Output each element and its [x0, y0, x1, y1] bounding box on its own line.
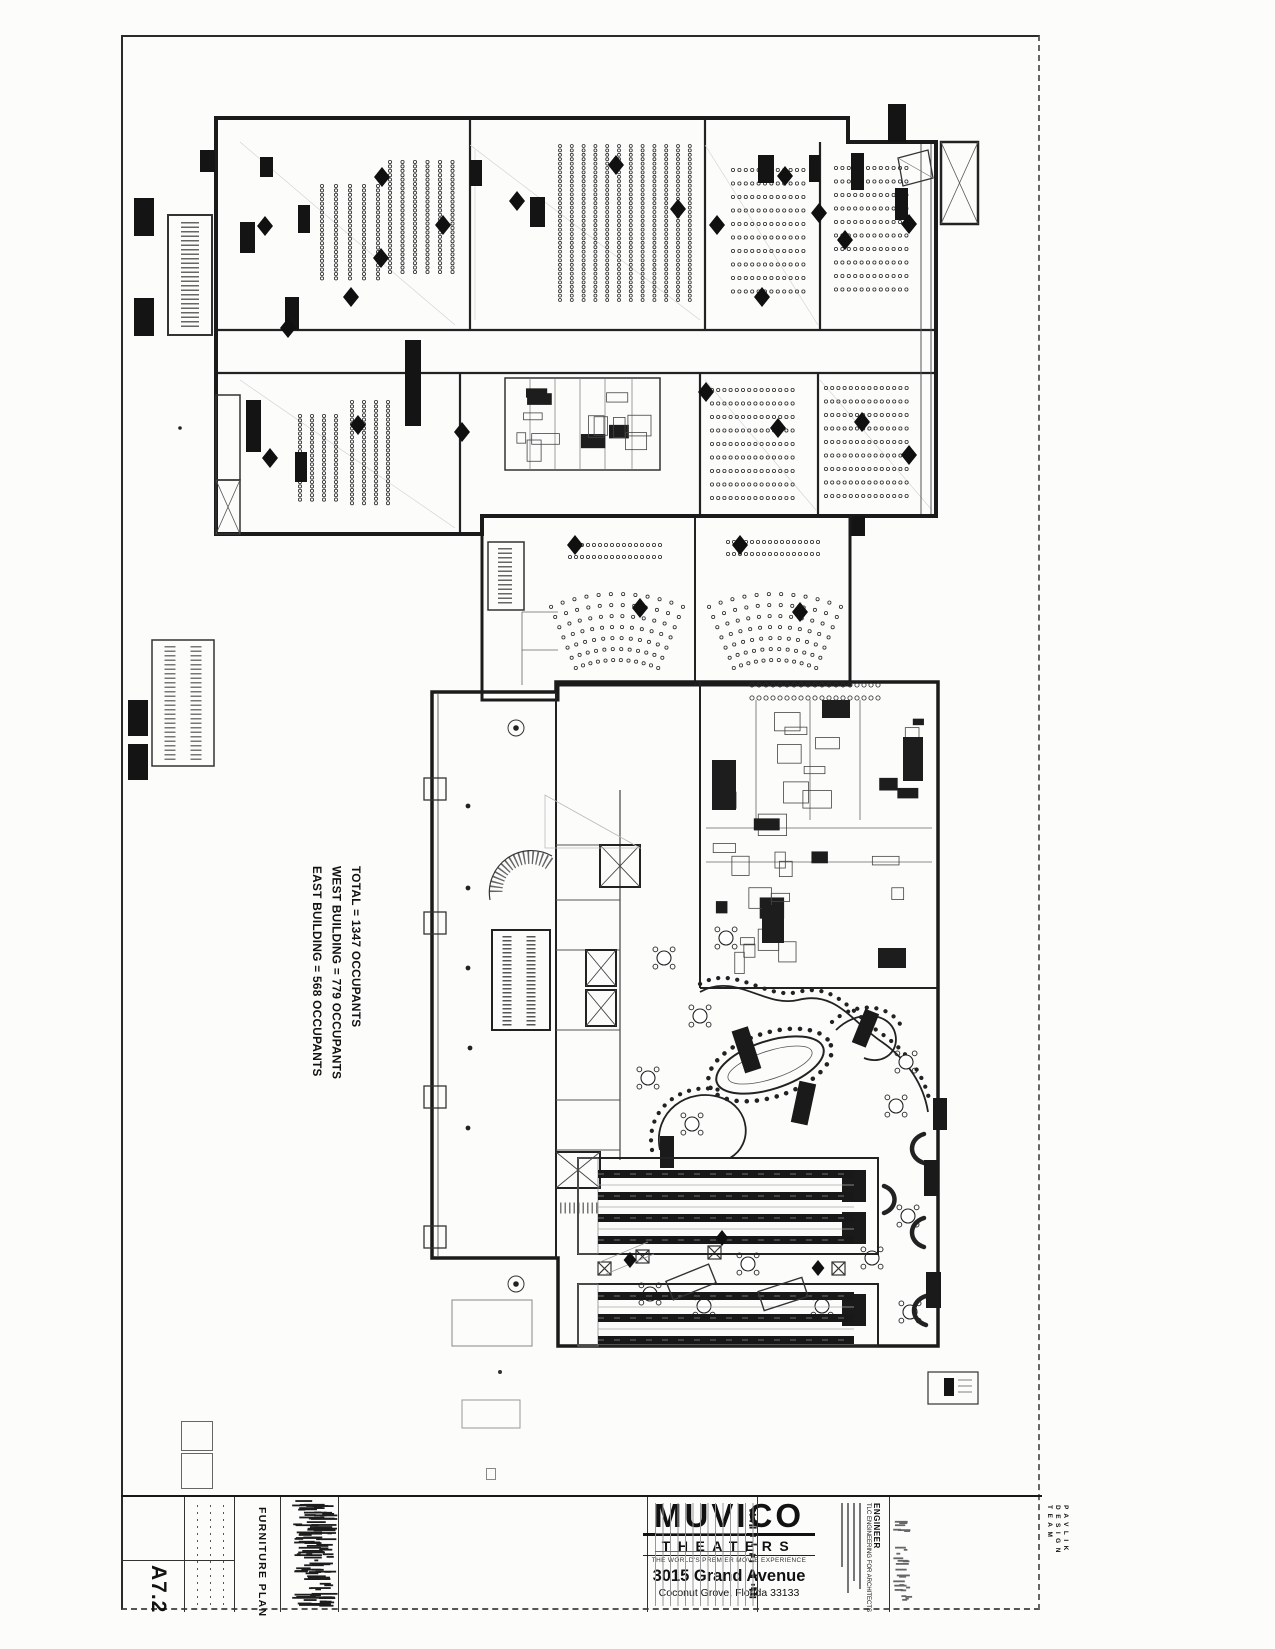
seat-dot [677, 158, 680, 161]
seat-dot [893, 386, 896, 389]
seat-dot [451, 262, 454, 265]
seat-dot [785, 483, 788, 486]
seat-dot [594, 197, 597, 200]
seat-dot [594, 167, 597, 170]
seat-dot [606, 153, 609, 156]
seat-dot [710, 483, 713, 486]
seat-dot [451, 266, 454, 269]
seat-dot [653, 149, 656, 152]
equipment [879, 778, 897, 791]
seat-dot [606, 184, 609, 187]
seat-dot [831, 481, 834, 484]
seat-dot [594, 193, 597, 196]
seat-dot [741, 415, 744, 418]
seat-dot [629, 272, 632, 275]
seat-dot [376, 211, 379, 214]
seat-dot [594, 184, 597, 187]
seat-dot [677, 263, 680, 266]
seat-dot [783, 263, 786, 266]
seat-dot [886, 440, 889, 443]
seat-dot [783, 222, 786, 225]
seat-dot [779, 442, 782, 445]
seat-dot [656, 643, 659, 646]
seat-dot [618, 219, 621, 222]
seat-dot [757, 236, 760, 239]
seat-dot [629, 211, 632, 214]
seat-dot [899, 413, 902, 416]
seat-dot [776, 209, 779, 212]
seat-dot [362, 471, 365, 474]
seat-dot [562, 636, 565, 639]
seat-dot [570, 171, 573, 174]
seat-dot [892, 166, 895, 169]
seat-dot [320, 233, 323, 236]
seat-dot [873, 193, 876, 196]
seat-dot [629, 250, 632, 253]
equipment [524, 413, 543, 420]
seat-dot [628, 648, 631, 651]
seat-dot [386, 436, 389, 439]
seat-dot [629, 180, 632, 183]
seat-dot [748, 456, 751, 459]
seat-dot [570, 290, 573, 293]
seat-dot [618, 259, 621, 262]
seat-dot [606, 202, 609, 205]
seat-dot [570, 255, 573, 258]
seat-dot [362, 224, 365, 227]
seat-dot [641, 197, 644, 200]
seat-dot [426, 222, 429, 225]
seat-dot [766, 469, 769, 472]
seat-dot [374, 475, 377, 478]
seat-dot [776, 222, 779, 225]
seat-dot [616, 543, 619, 546]
seat-dot [766, 402, 769, 405]
seat-dot [362, 480, 365, 483]
seat-dot [785, 415, 788, 418]
seat-dot [641, 246, 644, 249]
seat-dot [582, 211, 585, 214]
seat-dot [559, 175, 562, 178]
seat-dot [598, 555, 601, 558]
seat-dot [629, 241, 632, 244]
seat-dot [334, 224, 337, 227]
seat-dot [792, 593, 795, 596]
seat-dot [606, 299, 609, 302]
seat-dot [860, 261, 863, 264]
seat-dot [860, 247, 863, 250]
seat-dot [348, 224, 351, 227]
seat-dot [729, 402, 732, 405]
seat-dot [610, 604, 613, 607]
equipment [811, 851, 827, 863]
seat-dot [559, 268, 562, 271]
seat-dot [837, 467, 840, 470]
chair [861, 1264, 866, 1269]
occupancy-west: WEST BUILDING = 779 OCCUPANTS [330, 866, 344, 1079]
seat-dot [334, 215, 337, 218]
seat-dot [334, 206, 337, 209]
seat-dot [570, 180, 573, 183]
seat-dot [866, 207, 869, 210]
seat-dot [751, 236, 754, 239]
seat-dot [688, 145, 691, 148]
seat-dot [413, 165, 416, 168]
seat-dot [834, 193, 837, 196]
seat-dot [905, 413, 908, 416]
seat-dot [653, 206, 656, 209]
seat-dot [770, 263, 773, 266]
seat-dot [582, 215, 585, 218]
seat-dot [762, 540, 765, 543]
seat-dot [374, 422, 377, 425]
seat-dot [738, 249, 741, 252]
seat-dot [629, 246, 632, 249]
seat-dot [795, 182, 798, 185]
seat-dot [837, 481, 840, 484]
seat-dot [362, 488, 365, 491]
seat-dot [710, 429, 713, 432]
seat-dot [334, 189, 337, 192]
seat-dot [736, 653, 739, 656]
seat-dot [334, 463, 337, 466]
seat-dot [785, 442, 788, 445]
seat-dot [581, 630, 584, 633]
seat-dot [322, 423, 325, 426]
seat-dot [641, 215, 644, 218]
seat-dot [760, 483, 763, 486]
seat-dot [348, 206, 351, 209]
seat-dot [642, 617, 645, 620]
seat-dot [413, 196, 416, 199]
seat-dot [559, 281, 562, 284]
seat-dot [388, 178, 391, 181]
seat-dot [779, 496, 782, 499]
seat-dot [582, 206, 585, 209]
seat-dot [780, 593, 783, 596]
seat-dot [653, 162, 656, 165]
seat-dot [905, 261, 908, 264]
seat-dot [772, 415, 775, 418]
seat-dot [322, 441, 325, 444]
seat-dot [582, 224, 585, 227]
seat-dot [570, 281, 573, 284]
seat-dot [661, 656, 664, 659]
seat-dot [893, 413, 896, 416]
seat-dot [665, 167, 668, 170]
seat-dot [388, 270, 391, 273]
seat-dot [665, 272, 668, 275]
seat-dot [559, 241, 562, 244]
issue-notes-cell [281, 1497, 339, 1612]
seat-dot [629, 637, 632, 640]
seat-dot [811, 619, 814, 622]
seat-dot [728, 656, 731, 659]
seat-dot [582, 281, 585, 284]
seat-dot [570, 153, 573, 156]
seat-dot [348, 211, 351, 214]
seat-dot [751, 182, 754, 185]
seat-dot [388, 218, 391, 221]
seat-dot [726, 622, 729, 625]
seat-dot [880, 386, 883, 389]
seat-dot [616, 555, 619, 558]
seat-dot [641, 149, 644, 152]
seat-dot [898, 220, 901, 223]
seat-dot [834, 696, 838, 700]
seat-dot [322, 445, 325, 448]
seat-dot [710, 496, 713, 499]
sheet-title: FURNITURE PLAN [256, 1507, 268, 1617]
seat-dot [362, 268, 365, 271]
seat-dot [570, 241, 573, 244]
seat-dot [386, 409, 389, 412]
middle-theaters [482, 516, 850, 700]
seat-dot [559, 149, 562, 152]
seat-dot [789, 195, 792, 198]
seat-dot [738, 182, 741, 185]
seat-dot [350, 488, 353, 491]
seat-dot [594, 290, 597, 293]
seat-dot [401, 253, 404, 256]
seat-dot [751, 263, 754, 266]
seat-dot [795, 195, 798, 198]
seat-dot [776, 236, 779, 239]
seat-dot [413, 253, 416, 256]
seat-dot [362, 202, 365, 205]
seat-dot [811, 653, 814, 656]
seat-dot [738, 222, 741, 225]
seat-dot [854, 234, 857, 237]
seat-dot [756, 604, 759, 607]
seat-dot [741, 640, 744, 643]
seat-dot [320, 264, 323, 267]
seat-dot [665, 175, 668, 178]
seat-dot [841, 288, 844, 291]
seat-dot [362, 198, 365, 201]
seat-dot [611, 647, 614, 650]
seat-dot [388, 262, 391, 265]
seat-dot [350, 497, 353, 500]
seat-dot [451, 240, 454, 243]
seat-dot [582, 175, 585, 178]
seat-dot [733, 643, 736, 646]
seat-dot [310, 494, 313, 497]
seat-dot [413, 209, 416, 212]
seat-dot [688, 206, 691, 209]
seat-dot [807, 664, 810, 667]
seat-dot [854, 220, 857, 223]
seat-dot [582, 263, 585, 266]
seat-dot [413, 204, 416, 207]
seat-dot [860, 288, 863, 291]
seat-dot [559, 153, 562, 156]
seat-dot [819, 656, 822, 659]
seat-dot [386, 475, 389, 478]
seat-dot [334, 441, 337, 444]
seat-dot [376, 277, 379, 280]
seat-dot [789, 249, 792, 252]
seat-dot [604, 543, 607, 546]
seat-dot [322, 450, 325, 453]
seat-dot [622, 543, 625, 546]
seat-dot [376, 189, 379, 192]
seat-dot [629, 255, 632, 258]
seat-dot [413, 257, 416, 260]
seat-dot [665, 241, 668, 244]
seat-dot [348, 237, 351, 240]
equipment [732, 856, 749, 875]
seat-dot [665, 189, 668, 192]
seat-dot [618, 272, 621, 275]
seat-dot [886, 400, 889, 403]
seat-dot [594, 281, 597, 284]
seat-dot [376, 206, 379, 209]
chair [637, 1067, 642, 1072]
seat-dot [334, 489, 337, 492]
seat-dot [618, 277, 621, 280]
seat-dot [802, 236, 805, 239]
seat-dot [629, 219, 632, 222]
seat-dot [362, 444, 365, 447]
seat-dot [760, 429, 763, 432]
seat-dot [849, 440, 852, 443]
seat-dot [334, 454, 337, 457]
seat-dot [641, 294, 644, 297]
seat-dot [374, 436, 377, 439]
seat-dot [310, 436, 313, 439]
seat-dot [780, 540, 783, 543]
seat-dot [653, 184, 656, 187]
seat-dot [886, 261, 889, 264]
seat-dot [653, 255, 656, 258]
seat-dot [783, 276, 786, 279]
seat-dot [582, 294, 585, 297]
seat-dot [899, 386, 902, 389]
seat-dot [789, 222, 792, 225]
seat-dot [559, 202, 562, 205]
seat-dot [594, 215, 597, 218]
chair [861, 1247, 866, 1252]
seat-dot [322, 428, 325, 431]
seat-dot [334, 250, 337, 253]
seat-dot [905, 494, 908, 497]
keynote-diamond [670, 199, 686, 219]
seat-dot [834, 180, 837, 183]
east-building [424, 682, 978, 1428]
seat-dot [802, 263, 805, 266]
chair [754, 1270, 759, 1275]
seat-dot [592, 543, 595, 546]
seat-dot [575, 608, 578, 611]
seat-dot [898, 180, 901, 183]
seat-dot [348, 189, 351, 192]
seat-dot [320, 215, 323, 218]
seat-dot [618, 263, 621, 266]
seat-dot [899, 440, 902, 443]
chair [897, 1222, 902, 1227]
seat-dot [610, 614, 613, 617]
seat-dot [350, 471, 353, 474]
seat-dot [641, 167, 644, 170]
table [693, 1009, 707, 1023]
seat-dot [618, 180, 621, 183]
seat-dot [310, 472, 313, 475]
seat-dot [606, 294, 609, 297]
seat-dot [905, 166, 908, 169]
seat-dot [606, 268, 609, 271]
seat-dot [868, 440, 871, 443]
kitchen-concession [700, 682, 938, 988]
seat-dot [898, 288, 901, 291]
seat-dot [641, 290, 644, 293]
seat-dot [606, 259, 609, 262]
seat-dot [849, 400, 852, 403]
seat-dot [426, 196, 429, 199]
seat-dot [886, 427, 889, 430]
chair [732, 944, 737, 949]
seat-dot [334, 242, 337, 245]
seat-dot [653, 153, 656, 156]
seat-dot [426, 204, 429, 207]
seat-dot [843, 413, 846, 416]
seat-dot [795, 276, 798, 279]
seat-dot [582, 193, 585, 196]
seat-dot [362, 277, 365, 280]
auditorium-seats [710, 388, 794, 499]
seat-dot [760, 456, 763, 459]
seat-dot [610, 625, 613, 628]
seat-dot [879, 193, 882, 196]
seat-dot [374, 502, 377, 505]
seat-dot [413, 187, 416, 190]
seat-dot [873, 288, 876, 291]
seat-dot [653, 619, 656, 622]
seat-dot [628, 543, 631, 546]
seat-dot [348, 277, 351, 280]
seat-dot [362, 242, 365, 245]
seat-dot [862, 400, 865, 403]
seat-dot [899, 494, 902, 497]
seat-dot [677, 250, 680, 253]
seat-dot [794, 649, 797, 652]
seat-dot [350, 502, 353, 505]
seat-dot [802, 195, 805, 198]
seat-dot [724, 646, 727, 649]
seat-dot [594, 233, 597, 236]
seat-dot [677, 184, 680, 187]
chair [706, 1005, 711, 1010]
keynote-diamond [567, 535, 583, 555]
seat-dot [451, 191, 454, 194]
seat-dot [893, 481, 896, 484]
seat-dot [641, 299, 644, 302]
seat-dot [860, 274, 863, 277]
seat-dot [413, 222, 416, 225]
seat-dot [772, 442, 775, 445]
seat-dot [886, 386, 889, 389]
revision-table-cell [648, 1497, 758, 1612]
design-team-line3: TEAM [1045, 1505, 1053, 1601]
seat-dot [388, 191, 391, 194]
seat-dot [374, 418, 377, 421]
seat-dot [388, 169, 391, 172]
seat-dot [618, 202, 621, 205]
seat-dot [874, 386, 877, 389]
seat-dot [618, 224, 621, 227]
seat-dot [413, 244, 416, 247]
seat-dot [376, 233, 379, 236]
